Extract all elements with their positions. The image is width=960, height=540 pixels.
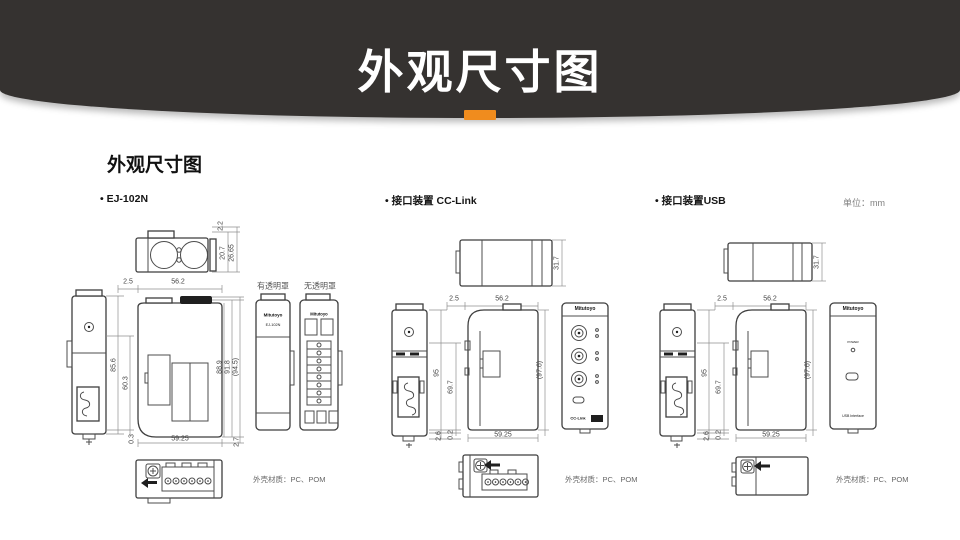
page-title: 外观尺寸图: [107, 150, 202, 177]
cc-top-view: [456, 240, 552, 286]
dim-label: 31.7: [554, 256, 561, 270]
usb-width-dim-lines: [715, 302, 806, 310]
accent-underline: [464, 110, 496, 120]
dim-label: 85.6: [111, 358, 118, 372]
dim-label: 2.6: [436, 431, 443, 441]
ej-width-dim-lines: [118, 285, 222, 293]
cc-side-view: [392, 304, 427, 448]
ej-bottom-view: [136, 460, 222, 503]
dim-label: 2.5: [449, 296, 459, 303]
material-label: 外壳材质：PC、POM: [253, 474, 326, 485]
dim-label: 88.9: [217, 360, 224, 374]
brand-label: Mitutoyo: [310, 312, 327, 317]
dim-label: (97.6): [537, 361, 544, 379]
dim-label: 59.25: [494, 432, 512, 439]
banner-title: 外观尺寸图: [0, 36, 960, 102]
dim-label: (94.5): [233, 358, 240, 376]
usb-side-view: [660, 304, 695, 448]
dim-label: 2.5: [123, 279, 133, 286]
usb-bottom-view: [732, 457, 808, 495]
dim-label: 95: [434, 369, 441, 377]
material-label: 外壳材质：PC、POM: [565, 474, 638, 485]
header-banner: 外观尺寸图: [0, 0, 960, 118]
dim-label: 2.2: [218, 221, 225, 231]
cover-with-label: 有透明罩: [257, 281, 289, 292]
usb-interface-label: USB Interface: [842, 414, 864, 418]
dim-label: 56.2: [763, 296, 777, 303]
power-label: POWER: [847, 340, 858, 344]
dim-label: 59.25: [762, 432, 780, 439]
dim-label: 0.3: [129, 434, 136, 444]
cover-without-label: 无透明罩: [304, 281, 336, 292]
cclink-logo-label: CC-Link: [570, 416, 585, 421]
cclink-logo-box: [591, 415, 603, 422]
cclink-drawing-group: 31.7 2.5 56.2 95 69.7 (97.6) 2.6 0.2 59.…: [385, 215, 685, 525]
dim-label: 20.7: [220, 246, 227, 260]
dim-label: 95: [702, 369, 709, 377]
dim-label: 0.2: [716, 430, 723, 440]
dim-label: 69.7: [716, 380, 723, 394]
ej-front-view: [138, 296, 222, 437]
connector-cover: [180, 296, 212, 304]
dim-label: (97.6): [805, 361, 812, 379]
model-label: EJ-102N: [266, 323, 281, 327]
dim-label: 91.8: [225, 360, 232, 374]
cc-front-panel: [562, 303, 608, 433]
dim-label: 2.5: [717, 296, 727, 303]
ej102n-drawing-group: 2.2 20.7 26.65 2.5 56.2 85.6 60.3 0.3 88…: [60, 215, 360, 525]
usb-drawing-group: 31.7 2.5 56.2 95 69.7 (97.6) 2.6 0.2 59.…: [653, 215, 953, 525]
dim-label: 59.25: [171, 436, 189, 443]
brand-label: Mitutoyo: [264, 313, 283, 318]
brand-label: Mitutoyo: [575, 306, 596, 312]
dim-label: 2.6: [704, 431, 711, 441]
dim-label: 26.65: [229, 244, 236, 262]
dim-label: 2.7: [234, 437, 241, 447]
dim-label: 31.7: [814, 255, 821, 269]
dim-label: 60.3: [123, 376, 130, 390]
cc-width-dim-lines: [447, 302, 538, 310]
brand-label: Mitutoyo: [843, 306, 864, 312]
dim-label: 69.7: [448, 380, 455, 394]
din-clip-icon: [77, 387, 99, 421]
dim-label: 56.2: [171, 279, 185, 286]
dim-label: 56.2: [495, 296, 509, 303]
usb-top-view: [724, 243, 812, 281]
ej-side-view: [67, 290, 106, 445]
section-label-ej102n: • EJ-102N: [100, 193, 148, 205]
usb-front-view: [733, 304, 806, 430]
cc-bottom-view: [459, 455, 538, 497]
material-label: 外壳材质：PC、POM: [836, 474, 909, 485]
dim-label: 0.2: [448, 430, 455, 440]
cc-front-view: [465, 304, 538, 430]
section-label-usb: • 接口装置USB: [655, 193, 726, 208]
unit-label: 单位：mm: [843, 196, 885, 209]
ej-top-view: [136, 231, 216, 272]
section-label-cclink: • 接口装置 CC-Link: [385, 193, 477, 208]
